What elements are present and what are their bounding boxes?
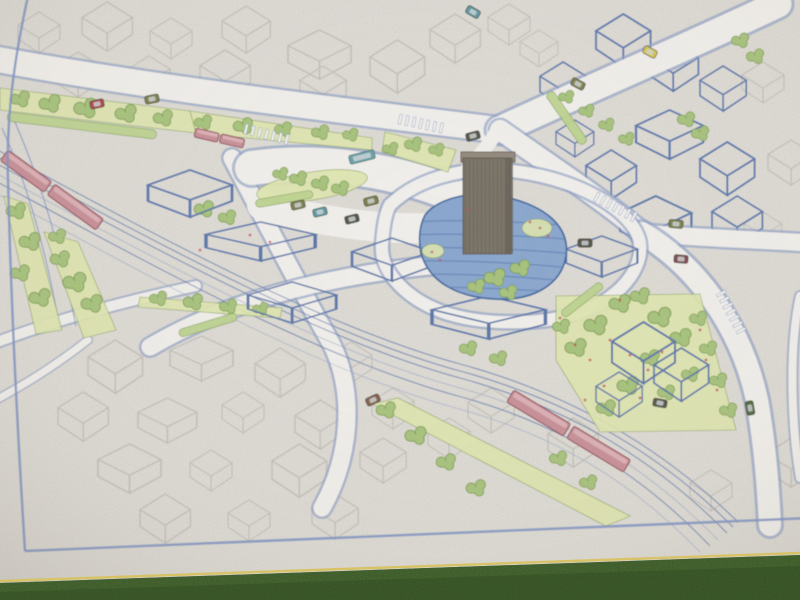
photo-vignette (0, 0, 800, 600)
site-plan-photo (0, 0, 800, 600)
photo-of-site-plan (0, 0, 800, 600)
